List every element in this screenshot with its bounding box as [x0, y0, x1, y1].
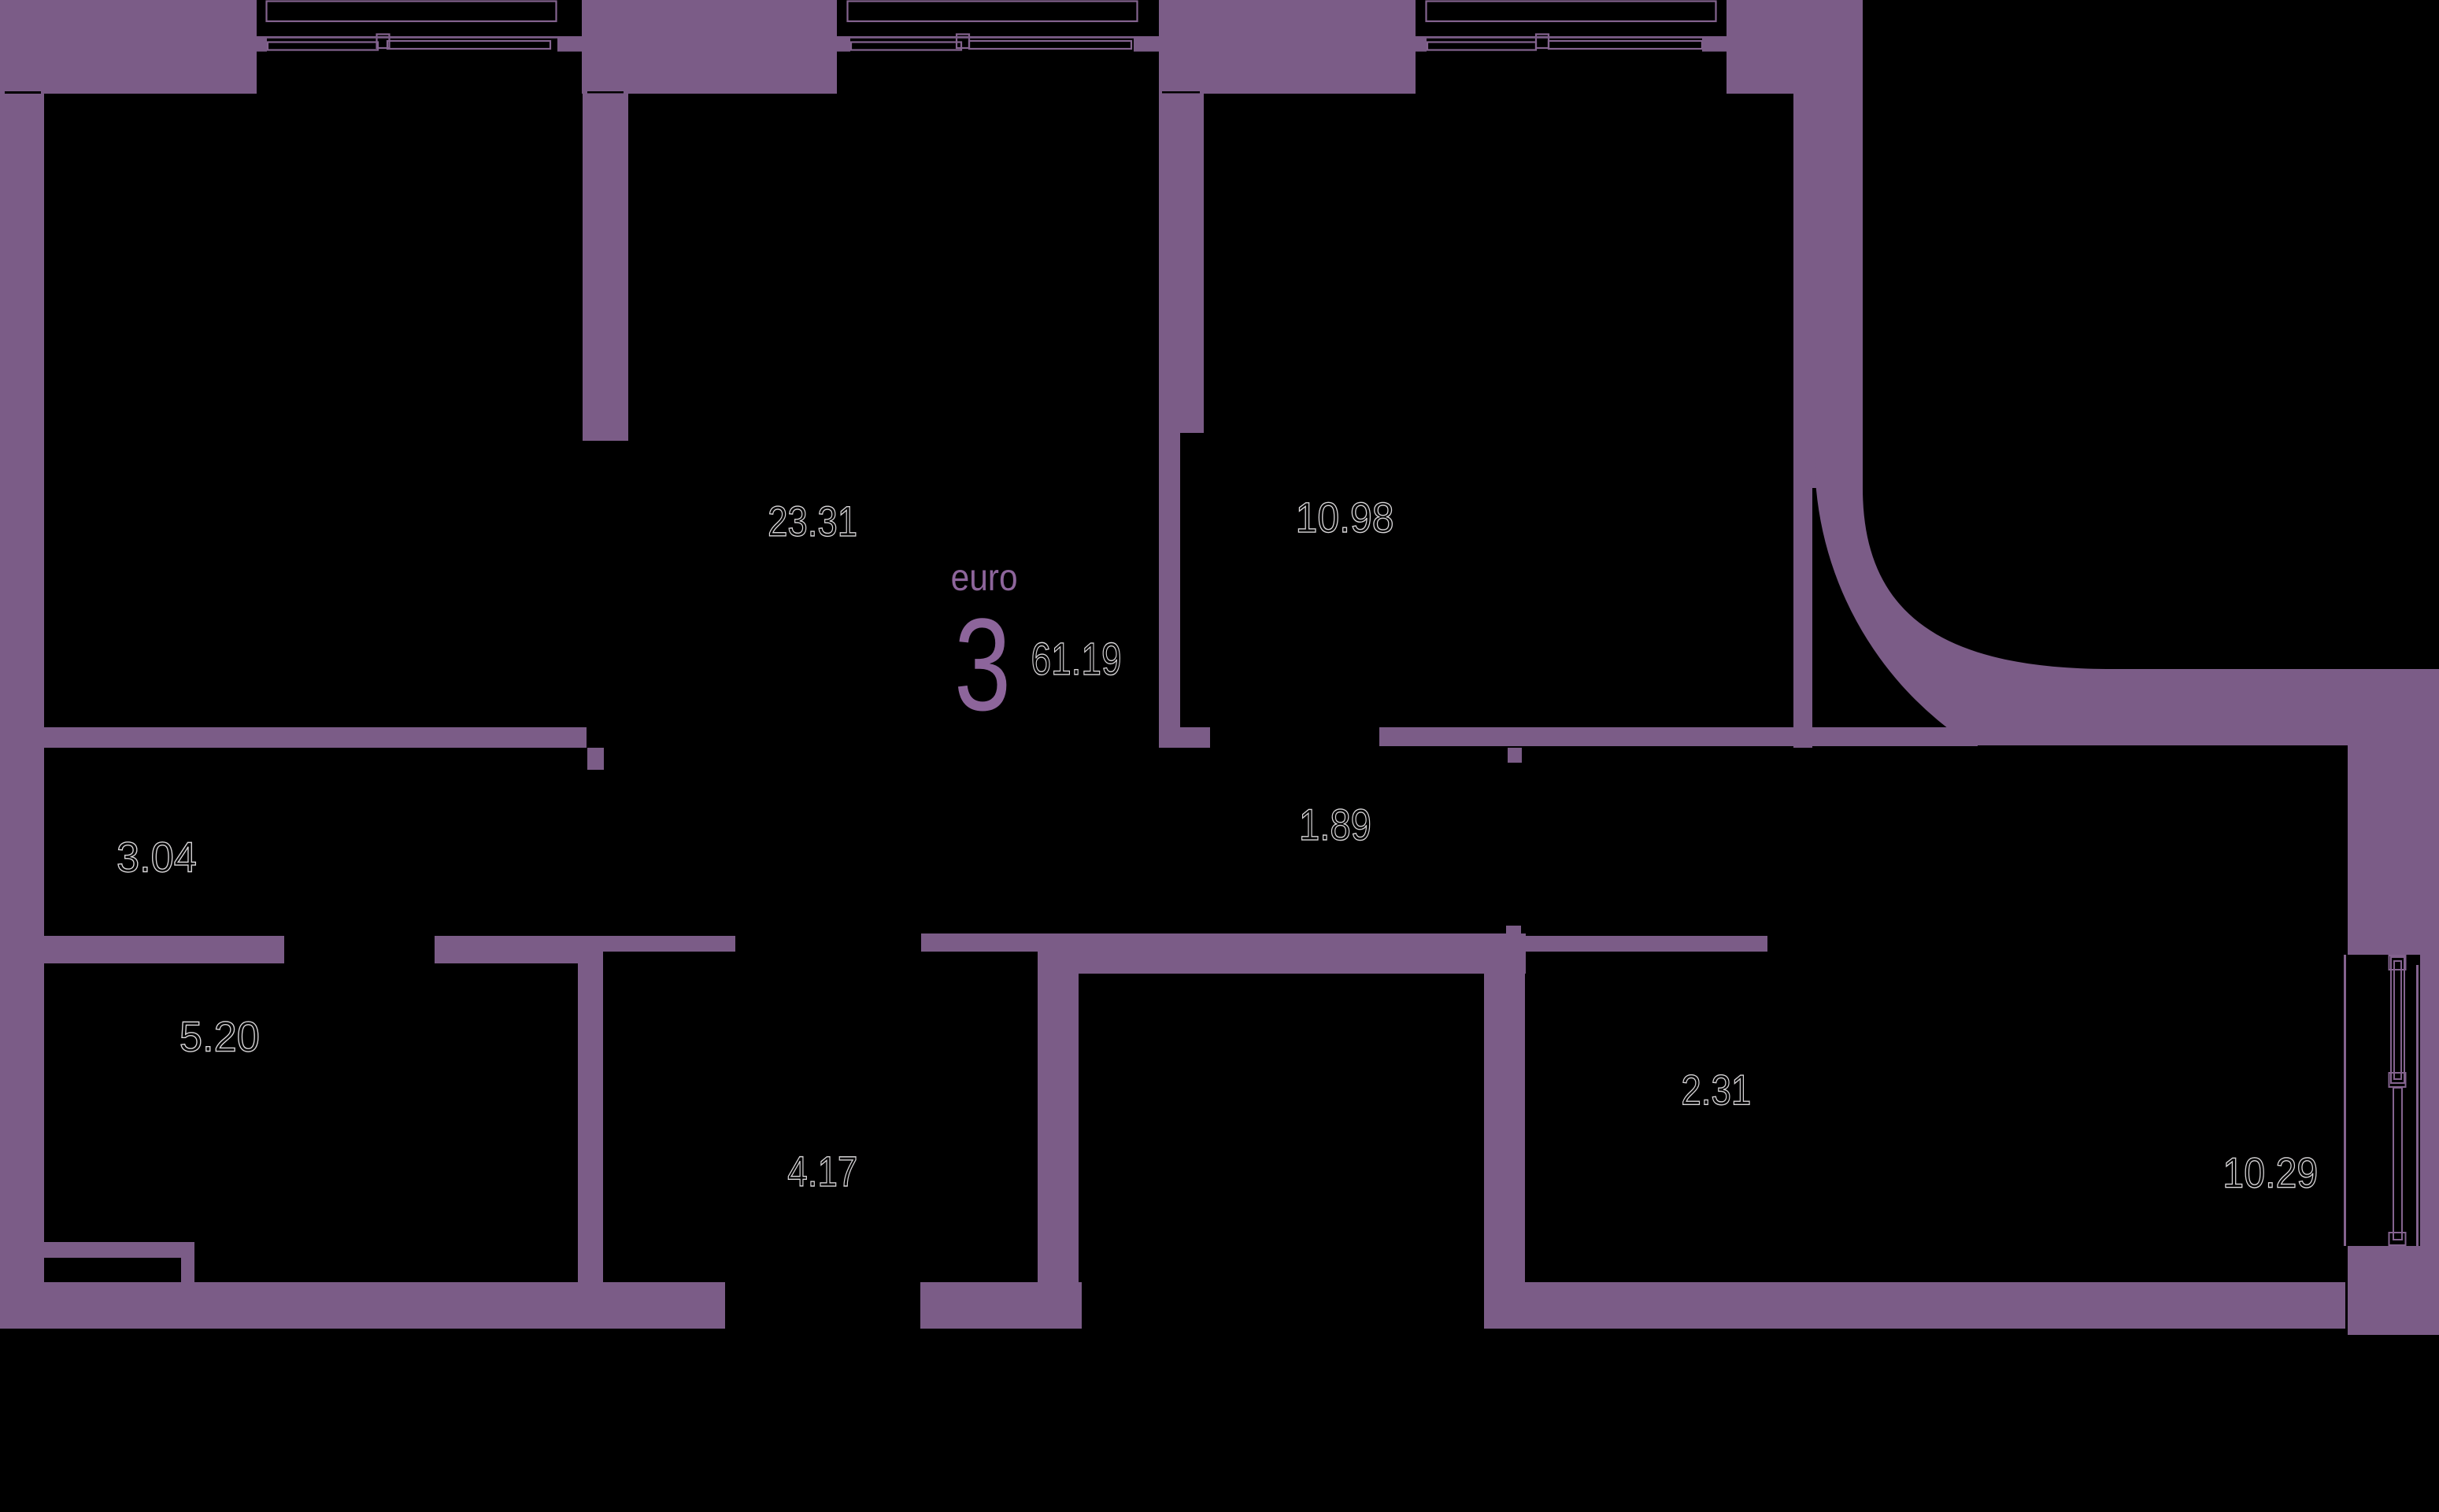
- svg-text:4.17: 4.17: [787, 1148, 857, 1196]
- svg-text:3: 3: [954, 592, 1011, 738]
- svg-text:1.89: 1.89: [1299, 800, 1371, 849]
- svg-text:2.31: 2.31: [1681, 1067, 1751, 1114]
- svg-text:61.19: 61.19: [1031, 634, 1122, 685]
- svg-text:10.29: 10.29: [2222, 1149, 2318, 1196]
- svg-text:23.31: 23.31: [768, 498, 857, 545]
- svg-text:5.20: 5.20: [180, 1014, 260, 1061]
- svg-text:3.04: 3.04: [117, 834, 197, 882]
- svg-text:10.98: 10.98: [1296, 494, 1394, 542]
